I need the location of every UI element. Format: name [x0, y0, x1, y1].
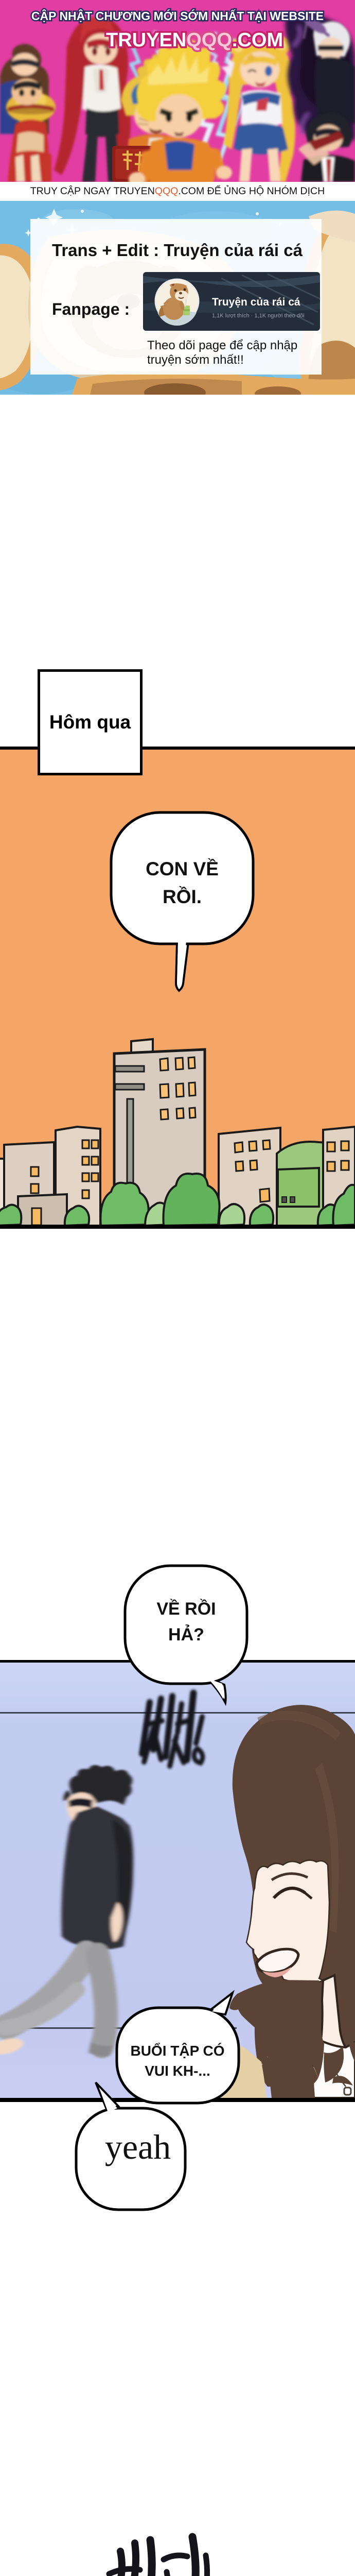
- svg-text:RỒI.: RỒI.: [163, 886, 202, 907]
- svg-text:Theo dõi page để cập nhập: Theo dõi page để cập nhập: [147, 338, 297, 352]
- svg-text:BUỔI TẬP CÓ: BUỔI TẬP CÓ: [130, 2043, 224, 2059]
- svg-text:CẬP NHẬT CHƯƠNG MỚI SỚM NHẤT T: CẬP NHẬT CHƯƠNG MỚI SỚM NHẤT TẠI WEBSITE: [31, 9, 324, 23]
- svg-text:TRUYENQQQ.COM: TRUYENQQQ.COM: [106, 29, 283, 51]
- svg-text:CON VỀ: CON VỀ: [146, 858, 219, 879]
- svg-text:VỀ RỒI: VỀ RỒI: [156, 1599, 216, 1619]
- svg-text:Truyện của rái cá: Truyện của rái cá: [212, 296, 300, 308]
- svg-text:Fanpage :: Fanpage :: [52, 300, 130, 318]
- svg-text:truyện sớm nhất!!: truyện sớm nhất!!: [147, 353, 244, 367]
- svg-text:1,1K lượt thích · 1,1K người t: 1,1K lượt thích · 1,1K người theo dõi: [212, 313, 305, 319]
- svg-text:Trans + Edit : Truyện của rái: Trans + Edit : Truyện của rái cá: [52, 241, 303, 260]
- svg-text:HẢ?: HẢ?: [168, 1625, 204, 1645]
- svg-text:yeah: yeah: [105, 2127, 171, 2166]
